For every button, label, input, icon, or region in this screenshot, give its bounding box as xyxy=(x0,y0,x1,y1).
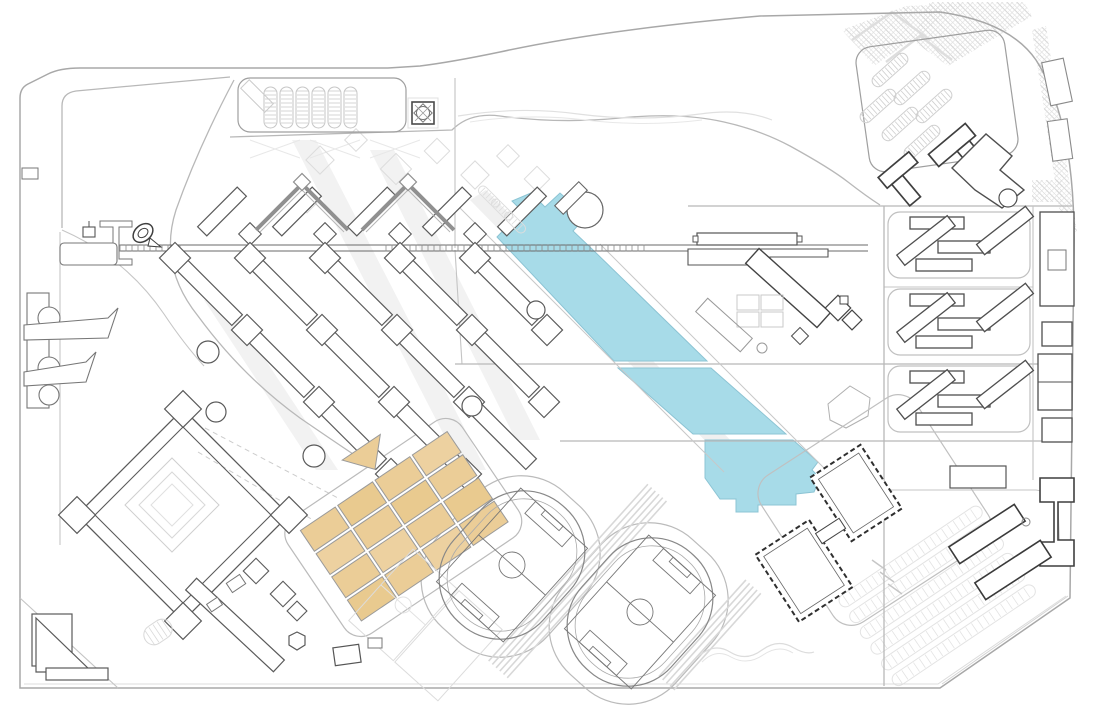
campus-boundary xyxy=(20,12,1074,688)
parking-stall-column-rungs xyxy=(281,91,292,123)
lecture-hall-round xyxy=(462,396,482,416)
ne-parking-row-rungs xyxy=(883,108,916,140)
parking-stall-column xyxy=(344,87,357,128)
small-building xyxy=(368,638,382,648)
parking-stall-column-outline xyxy=(312,87,325,128)
parking-stall-column-rungs xyxy=(297,91,308,123)
parking-stall-column-rungs xyxy=(345,91,356,123)
parking-stall-column-rungs xyxy=(329,91,340,123)
dorm-bar-diagonal xyxy=(977,206,1034,254)
parking-stall-column-outline xyxy=(296,87,309,128)
ne-parking-row-rungs xyxy=(861,90,894,122)
ne-parking-row-rungs xyxy=(895,72,928,104)
grandstand-tab xyxy=(797,236,802,242)
pavilion-diamond xyxy=(287,601,307,621)
dorm-bar xyxy=(916,413,972,425)
gym-connector xyxy=(816,518,846,543)
lake xyxy=(705,440,820,512)
parking-stall-column-outline xyxy=(280,87,293,128)
lecture-hall-round xyxy=(303,445,325,467)
campus-master-plan-drawing xyxy=(0,0,1096,705)
plaza-icon-x xyxy=(415,105,431,121)
west-building-bar xyxy=(60,243,117,265)
layer-topleft-parking xyxy=(238,78,438,132)
parking-stall-column xyxy=(328,87,341,128)
basketball-court xyxy=(761,295,783,310)
bleacher-band-2 xyxy=(659,580,761,690)
terraced-building xyxy=(828,386,870,428)
axis-row-bar xyxy=(348,187,397,236)
site-plan-screenshot xyxy=(0,0,1096,705)
axis-row-bar xyxy=(198,187,247,236)
small-building xyxy=(333,644,361,665)
faint-diamond xyxy=(497,145,520,168)
ne-parking-row xyxy=(892,69,933,107)
basketball-court xyxy=(761,312,783,327)
pavilion-diamond xyxy=(270,581,295,606)
library-court-2 xyxy=(139,472,205,538)
cluster-notch xyxy=(840,296,848,304)
hexagon-pavilion xyxy=(289,632,305,650)
grandstand-tab xyxy=(693,236,698,242)
wavy-stream-1 xyxy=(698,643,814,657)
corner-building-bar xyxy=(46,668,108,680)
dorm-bar-diagonal xyxy=(977,360,1034,408)
small-circle-plaza xyxy=(757,343,767,353)
small-diamond-building xyxy=(792,328,809,345)
faint-diamond xyxy=(461,161,489,189)
bleacher-steps xyxy=(659,580,761,690)
east-column-building xyxy=(1042,322,1072,346)
dorm-bar xyxy=(916,259,972,271)
small-building xyxy=(226,574,245,592)
goal-box xyxy=(541,510,563,531)
parking-stall-column-outline xyxy=(264,87,277,128)
goal-box xyxy=(589,646,611,667)
layer-dorms xyxy=(888,206,1074,566)
ne-parking-row-outline xyxy=(892,69,933,107)
lecture-hall-round xyxy=(527,301,545,319)
parking-stall-column xyxy=(296,87,309,128)
faint-diamond xyxy=(424,138,449,163)
basketball-court xyxy=(737,295,759,310)
library-court-3 xyxy=(151,484,193,526)
basketball-court xyxy=(737,312,759,327)
lecture-hall-round xyxy=(197,341,219,363)
axis-monument-flag xyxy=(148,238,161,247)
topleft-block-road xyxy=(62,77,230,228)
L-bar xyxy=(892,175,921,205)
corner-inner-diagonal xyxy=(942,596,1068,684)
dorm-bar xyxy=(916,336,972,348)
parking-stall-column xyxy=(264,87,277,128)
west-small-building xyxy=(22,168,38,179)
flag-kiosk xyxy=(83,227,95,237)
ne-parking-row xyxy=(880,105,921,143)
library-sw-wing xyxy=(186,578,285,672)
field-midline xyxy=(607,582,674,642)
parking-stall-column-rungs xyxy=(313,91,324,123)
crosshatch-square xyxy=(1032,180,1062,202)
diagonal-bar-building xyxy=(746,248,831,327)
parking-stall-column xyxy=(280,87,293,128)
dorm-bar-diagonal xyxy=(977,283,1034,331)
parking-stall-column xyxy=(312,87,325,128)
se-small-building xyxy=(950,466,1006,488)
ne-parking-row-rungs xyxy=(917,90,950,122)
parking-lot-outline xyxy=(238,78,406,132)
ne-parking-row xyxy=(914,87,955,125)
ne-curved-building-bump xyxy=(999,189,1017,207)
goal-box xyxy=(669,557,691,578)
ne-parking-row-outline xyxy=(914,87,955,125)
lawn-contour-2 xyxy=(470,117,702,124)
west-hall-bump xyxy=(39,385,59,405)
field-midline xyxy=(479,535,546,595)
canal-segment-2 xyxy=(618,368,786,434)
lecture-hall-round xyxy=(206,402,226,422)
pavilion-diamond xyxy=(243,558,268,583)
east-column-building xyxy=(1040,212,1074,306)
ne-parking-row-outline xyxy=(880,105,921,143)
stage-pavilion xyxy=(696,298,753,352)
grandstand-bar xyxy=(697,233,797,245)
east-column-building xyxy=(1042,418,1072,442)
wavy-stream-2 xyxy=(702,649,793,662)
gym-a-dashed xyxy=(810,445,902,541)
ne-L-building-2 xyxy=(878,152,936,210)
parking-stall-column-outline xyxy=(328,87,341,128)
parking-stall-column-outline xyxy=(344,87,357,128)
gym-b-dashed xyxy=(755,520,852,622)
